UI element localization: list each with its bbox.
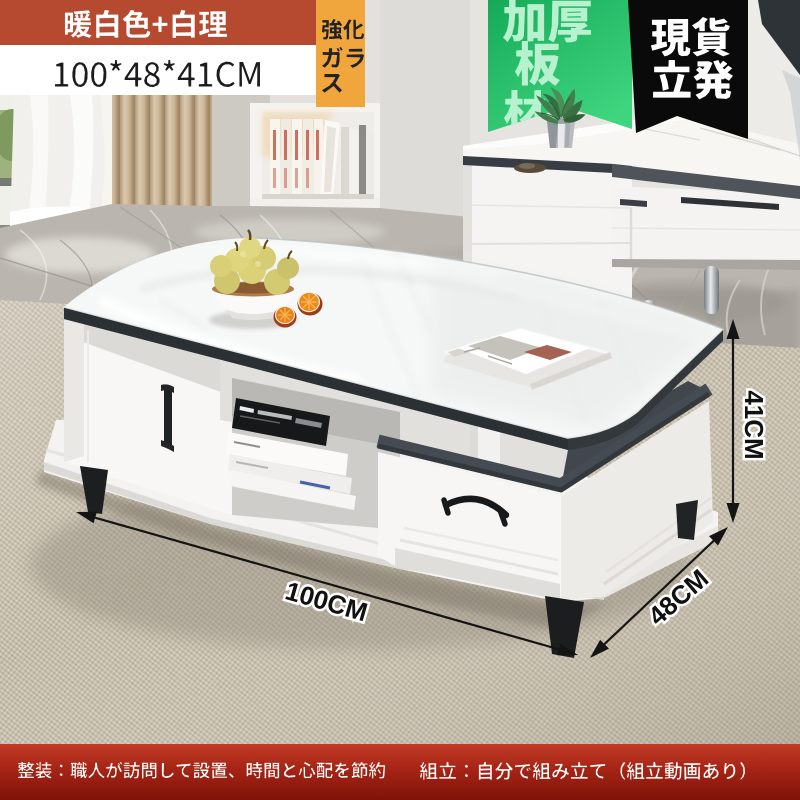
svg-text:41CM: 41CM bbox=[739, 390, 769, 459]
